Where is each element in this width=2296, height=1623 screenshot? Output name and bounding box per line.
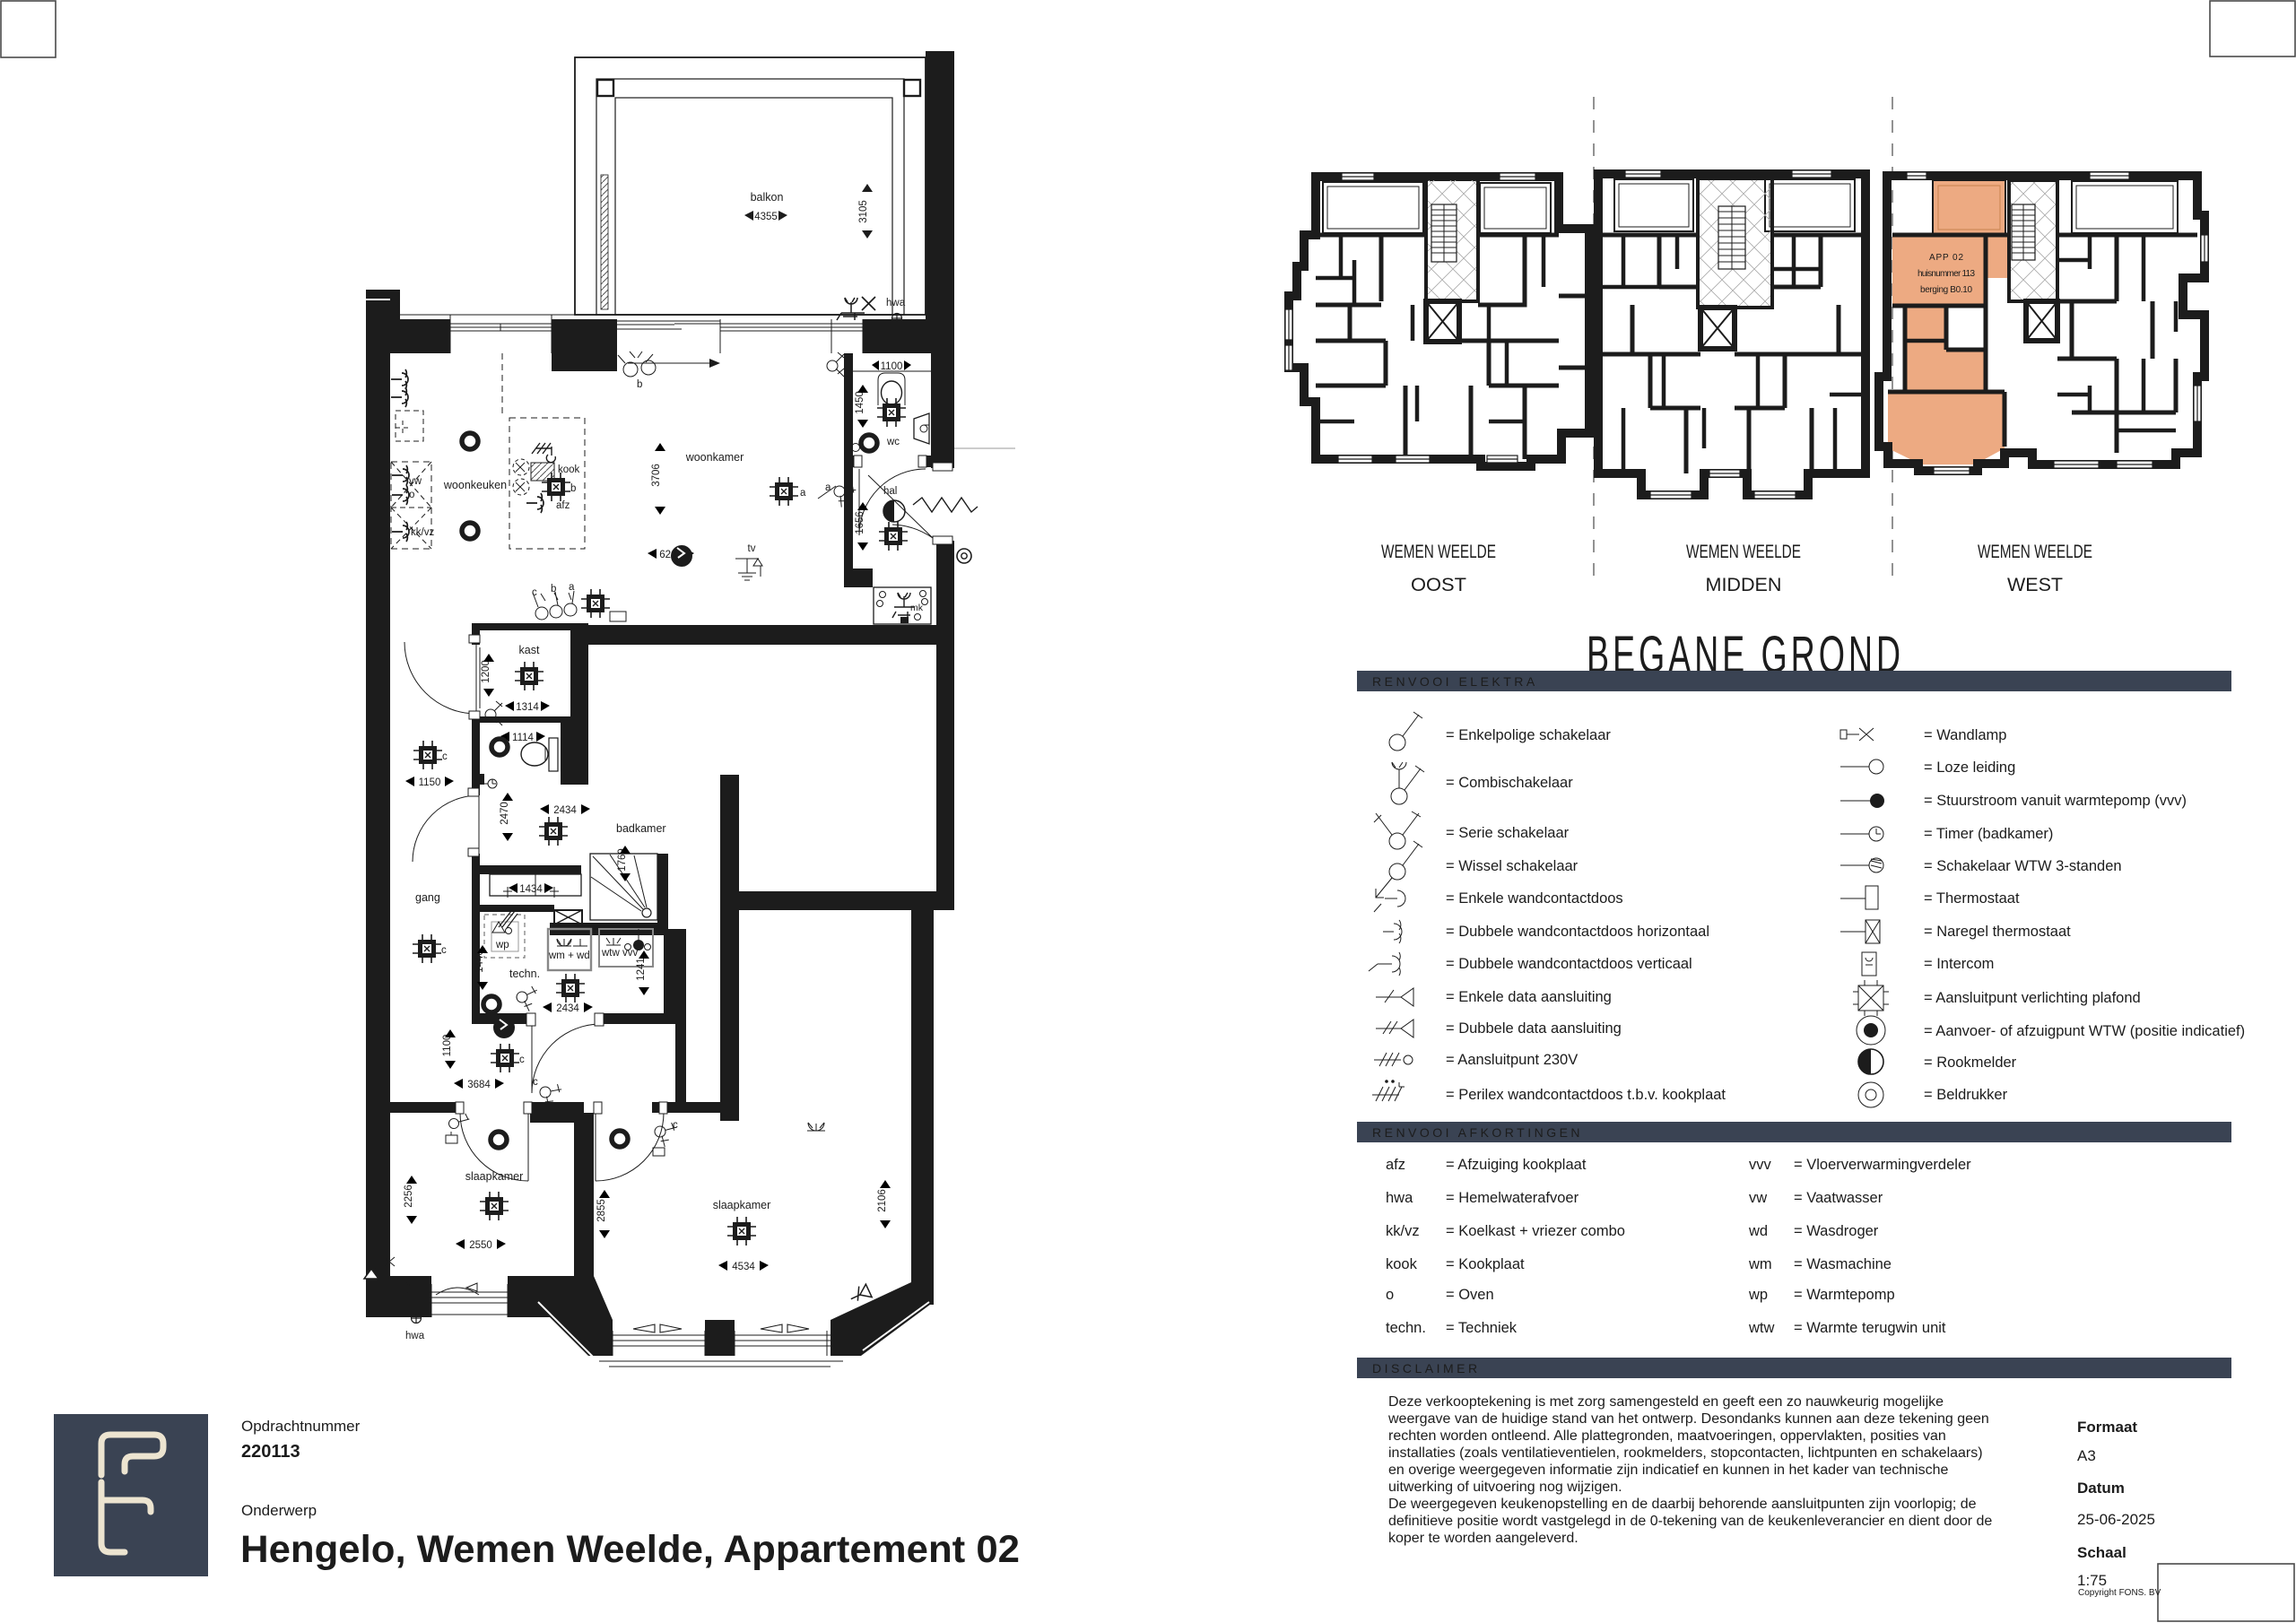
svg-text:= Hemelwaterafvoer: = Hemelwaterafvoer [1446,1190,1579,1206]
svg-text:kast: kast [519,644,540,656]
svg-text:hwa: hwa [886,298,906,308]
svg-text:= Enkele wandcontactdoos: = Enkele wandcontactdoos [1446,890,1623,907]
svg-text:woonkamer: woonkamer [685,451,744,464]
svg-text:hal: hal [883,486,897,497]
svg-text:= Enkele data aansluiting: = Enkele data aansluiting [1446,989,1612,1005]
svg-text:Deze verkooptekening is met zo: Deze verkooptekening is met zorg samenge… [1388,1394,1944,1410]
svg-text:balkon: balkon [751,191,784,204]
svg-text:WEMEN WEELDE: WEMEN WEELDE [1381,542,1496,562]
svg-text:WEMEN WEELDE: WEMEN WEELDE [1686,542,1801,562]
svg-text:Copyright FONS. BV: Copyright FONS. BV [2078,1588,2161,1598]
svg-text:Hengelo, Wemen Weelde, Apparte: Hengelo, Wemen Weelde, Appartement 02 [240,1528,1020,1571]
svg-text:vvv: vvv [1749,1157,1772,1173]
svg-text:huisnummer 113: huisnummer 113 [1918,269,1975,279]
svg-text:= Wissel schakelaar: = Wissel schakelaar [1446,858,1578,874]
svg-text:c: c [441,945,447,956]
svg-text:kook: kook [1386,1256,1418,1272]
svg-text:= Timer (badkamer): = Timer (badkamer) [1924,826,2053,842]
svg-text:3105: 3105 [858,200,869,223]
svg-text:b: b [570,483,576,494]
svg-text:2470: 2470 [500,802,510,825]
svg-text:hwa: hwa [405,1331,425,1341]
svg-text:techn.: techn. [509,968,540,980]
svg-text:vw: vw [409,476,422,487]
svg-text:Formaat: Formaat [2077,1419,2137,1436]
svg-text:= Perilex wandcontactdoos t.b: = Perilex wandcontactdoos t.b.v. kookpla… [1446,1087,1726,1103]
svg-text:= Dubbele wandcontactdoos hor: = Dubbele wandcontactdoos horizontaal [1446,924,1709,940]
svg-text:3706: 3706 [651,464,662,487]
svg-text:wp: wp [1748,1287,1768,1303]
svg-text:afz: afz [1386,1157,1405,1173]
svg-text:2434: 2434 [553,805,577,816]
svg-text:MIDDEN: MIDDEN [1706,575,1782,595]
svg-text:kk/vz: kk/vz [1386,1223,1420,1239]
svg-text:APP 02: APP 02 [1929,253,1963,263]
svg-text:badkamer: badkamer [616,822,666,835]
svg-text:rechten worden ontleend. Alle: rechten worden ontleend. Alle plattegron… [1388,1428,1946,1444]
svg-text:1100: 1100 [442,1035,453,1057]
svg-text:techn.: techn. [1386,1320,1426,1336]
svg-text:= Vaatwasser: = Vaatwasser [1794,1190,1883,1206]
svg-text:wd: wd [1748,1223,1768,1239]
svg-text:a: a [569,582,575,593]
svg-text:= Koelkast + vriezer combo: = Koelkast + vriezer combo [1446,1223,1625,1239]
svg-text:1656: 1656 [855,511,865,534]
svg-text:o: o [409,490,414,500]
svg-text:= Serie schakelaar: = Serie schakelaar [1446,825,1570,841]
svg-text:o: o [1386,1287,1394,1303]
svg-text:vw: vw [1749,1190,1767,1206]
svg-text:koper te worden aangeleverd.: koper te worden aangeleverd. [1388,1531,1578,1546]
svg-text:= Beldrukker: = Beldrukker [1924,1087,2008,1103]
svg-text:kk/vz: kk/vz [411,527,434,538]
svg-text:= Afzuiging kookplaat: = Afzuiging kookplaat [1446,1157,1587,1173]
svg-text:3684: 3684 [467,1080,491,1090]
svg-text:= Loze leiding: = Loze leiding [1924,759,2015,776]
svg-text:1114: 1114 [512,733,534,743]
svg-text:220113: 220113 [241,1442,300,1462]
svg-text:afz: afz [556,500,570,511]
svg-text:= Aansluitpunt 230V: = Aansluitpunt 230V [1446,1052,1578,1068]
svg-text:c: c [519,1055,525,1065]
svg-text:1440: 1440 [474,950,485,973]
svg-text:wtw: wtw [1748,1320,1775,1336]
svg-text:= Wasmachine: = Wasmachine [1794,1256,1892,1272]
svg-text:= Wasdroger: = Wasdroger [1794,1223,1879,1239]
svg-text:= Techniek: = Techniek [1446,1320,1518,1336]
svg-text:tv: tv [748,543,756,554]
svg-text:2855: 2855 [596,1199,607,1222]
svg-text:woonkeuken: woonkeuken [443,479,507,491]
svg-text:25-06-2025: 25-06-2025 [2077,1511,2155,1528]
svg-text:A3: A3 [2077,1447,2096,1464]
svg-text:wp: wp [495,940,509,950]
svg-text:= Kookplaat: = Kookplaat [1446,1256,1525,1272]
svg-text:= Combischakelaar: = Combischakelaar [1446,775,1573,791]
svg-text:Opdrachtnummer: Opdrachtnummer [241,1418,361,1435]
svg-text:= Dubbele wandcontactdoos ver: = Dubbele wandcontactdoos verticaal [1446,956,1692,972]
svg-text:= Warmte terugwin unit: = Warmte terugwin unit [1794,1320,1946,1336]
svg-text:1150: 1150 [419,777,441,788]
svg-text:definitieve positie wordt vast: definitieve positie wordt vastgelegd in … [1388,1514,1992,1529]
svg-text:gang: gang [415,891,440,904]
svg-text:mk: mk [910,603,924,613]
svg-text:berging B0.10: berging B0.10 [1920,285,1972,295]
svg-text:= Vloerverwarmingverdeler: = Vloerverwarmingverdeler [1794,1157,1971,1173]
svg-text:= Warmtepomp: = Warmtepomp [1794,1287,1895,1303]
svg-text:= Dubbele data aansluiting: = Dubbele data aansluiting [1446,1020,1622,1037]
svg-text:4534: 4534 [732,1262,755,1272]
svg-text:wm + wd: wm + wd [548,950,590,961]
svg-text:RENVOOI AFKORTINGEN: RENVOOI AFKORTINGEN [1372,1125,1583,1140]
svg-text:De weergegeven keukenopstellin: De weergegeven keukenopstelling en de da… [1388,1497,1977,1512]
svg-text:= Rookmelder: = Rookmelder [1924,1055,2017,1071]
svg-text:= Oven: = Oven [1446,1287,1494,1303]
svg-text:wm: wm [1748,1256,1772,1272]
svg-text:1314: 1314 [516,702,539,713]
svg-text:Datum: Datum [2077,1480,2125,1497]
svg-text:= Stuurstroom vanuit warmtepo: = Stuurstroom vanuit warmtepomp (vvv) [1924,793,2187,809]
svg-text:1434: 1434 [519,884,543,895]
svg-text:= Naregel thermostaat: = Naregel thermostaat [1924,924,2071,940]
svg-text:RENVOOI ELEKTRA: RENVOOI ELEKTRA [1372,674,1538,689]
svg-text:c: c [532,587,537,598]
svg-text:DISCLAIMER: DISCLAIMER [1372,1361,1481,1376]
svg-text:1:75: 1:75 [2077,1572,2107,1589]
svg-text:wtw vvv: wtw vvv [601,948,639,959]
svg-text:c: c [673,1120,678,1131]
svg-text:installaties (zoals ventilatie: installaties (zoals ventilatieventielen,… [1388,1445,1983,1461]
svg-text:slaapkamer: slaapkamer [713,1199,771,1211]
svg-text:Onderwerp: Onderwerp [241,1502,317,1519]
svg-text:c: c [533,1077,538,1088]
svg-text:en overige weergegeven informa: en overige weergegeven informatie zijn i… [1388,1462,1948,1478]
svg-text:Schaal: Schaal [2077,1544,2126,1561]
svg-text:a: a [800,488,806,499]
svg-text:= Schakelaar WTW 3-standen: = Schakelaar WTW 3-standen [1924,858,2122,874]
svg-text:weergave van de huidige stand: weergave van de huidige stand van het on… [1387,1411,1989,1427]
svg-text:= Wandlamp: = Wandlamp [1924,727,2006,743]
svg-text:1450: 1450 [855,391,865,414]
svg-text:WEST: WEST [2007,575,2063,595]
svg-text:uitwerking of uitvoering nog w: uitwerking of uitvoering nog wijzigen. [1388,1480,1622,1495]
svg-text:2434: 2434 [556,1003,579,1014]
svg-text:2256: 2256 [404,1185,414,1208]
svg-text:= Aanvoer- of afzuigpunt WTW: = Aanvoer- of afzuigpunt WTW (positie in… [1924,1023,2245,1039]
svg-text:= Enkelpolige schakelaar: = Enkelpolige schakelaar [1446,727,1611,743]
svg-text:4355: 4355 [754,212,778,222]
svg-text:OOST: OOST [1411,575,1466,595]
svg-text:hwa: hwa [1386,1190,1413,1206]
svg-text:WEMEN WEELDE: WEMEN WEELDE [1978,542,2092,562]
svg-text:slaapkamer: slaapkamer [465,1170,524,1183]
svg-text:b: b [637,379,642,390]
svg-text:2550: 2550 [469,1240,492,1251]
svg-text:c: c [442,751,448,762]
svg-text:= Intercom: = Intercom [1924,956,1994,972]
svg-text:= Thermostaat: = Thermostaat [1924,890,2020,907]
svg-text:1100: 1100 [881,361,903,372]
svg-text:2106: 2106 [877,1189,888,1212]
svg-text:1200: 1200 [481,660,491,683]
svg-text:= Aansluitpunt verlichting pl: = Aansluitpunt verlichting plafond [1924,990,2141,1006]
svg-text:b: b [551,584,556,595]
svg-text:wc: wc [886,437,900,447]
svg-text:1241: 1241 [636,958,647,981]
